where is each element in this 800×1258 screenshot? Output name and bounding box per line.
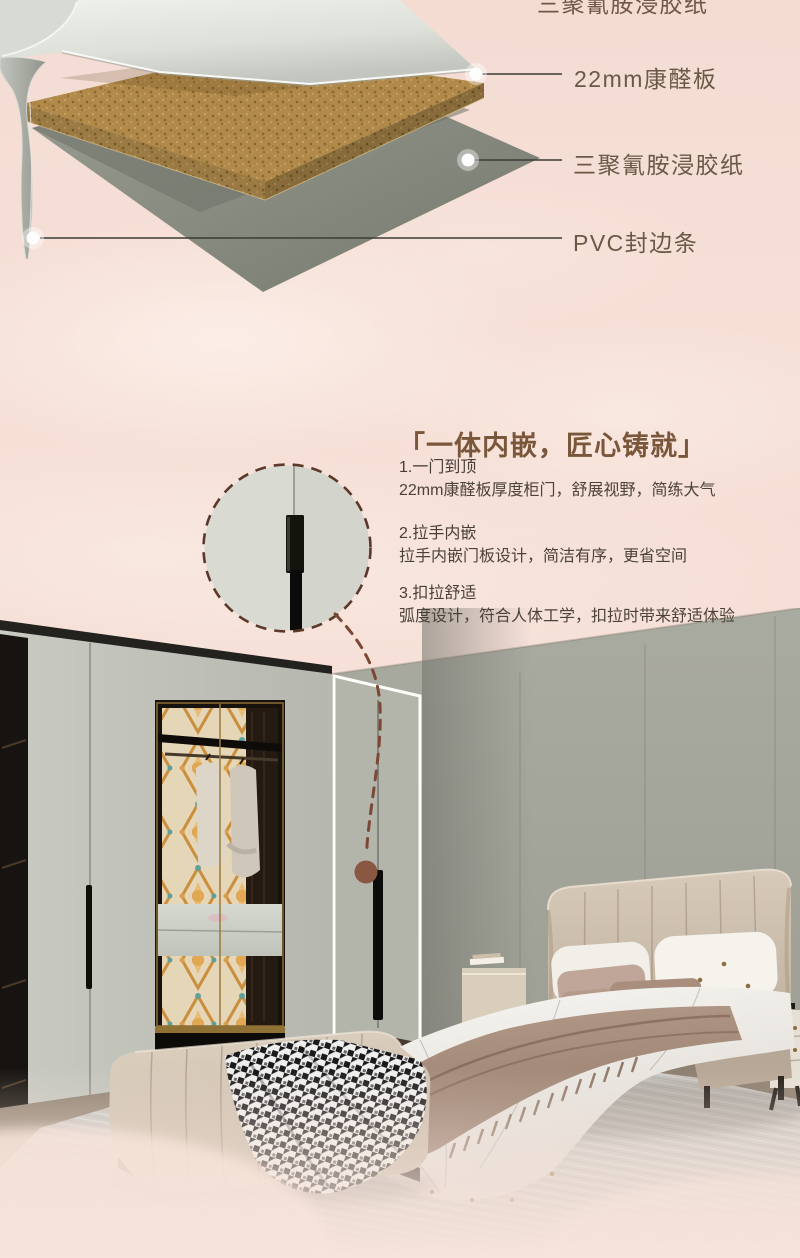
feature-item-3: 3.扣拉舒适 弧度设计，符合人体工学，扣拉时带来舒适体验: [399, 582, 735, 628]
feature-3-title: 3.扣拉舒适: [399, 582, 735, 605]
callout-label-board: 22mm康醛板: [574, 60, 717, 94]
callout-label-bottom-paper: 三聚氰胺浸胶纸: [573, 146, 745, 180]
feature-3-desc: 弧度设计，符合人体工学，扣拉时带来舒适体验: [399, 605, 735, 628]
handle-detail-inset: [197, 458, 377, 638]
feature-2-desc: 拉手内嵌门板设计，简洁有序，更省空间: [399, 545, 687, 568]
feature-2-title: 2.拉手内嵌: [399, 522, 687, 545]
feature-1-title: 1.一门到顶: [399, 456, 715, 479]
bedroom-photo: [0, 608, 800, 1258]
product-detail-page: { "page": { "background_color": "#f5ded5…: [0, 0, 800, 1258]
door-handle: [373, 870, 383, 1020]
top-melamine-sheet: [0, 0, 477, 85]
feature-1-desc: 22mm康醛板厚度柜门，舒展视野，简练大气: [399, 479, 715, 502]
callout-label-edge-band: PVC封边条: [573, 224, 698, 258]
pvc-edge-band: [0, 57, 46, 259]
feature-item-1: 1.一门到顶 22mm康醛板厚度柜门，舒展视野，简练大气: [399, 456, 715, 502]
callout-label-top-paper: 三聚氰胺浸胶纸: [537, 0, 709, 19]
feature-item-2: 2.拉手内嵌 拉手内嵌门板设计，简洁有序，更省空间: [399, 522, 687, 568]
wardrobe-glass-section: [155, 700, 285, 1060]
